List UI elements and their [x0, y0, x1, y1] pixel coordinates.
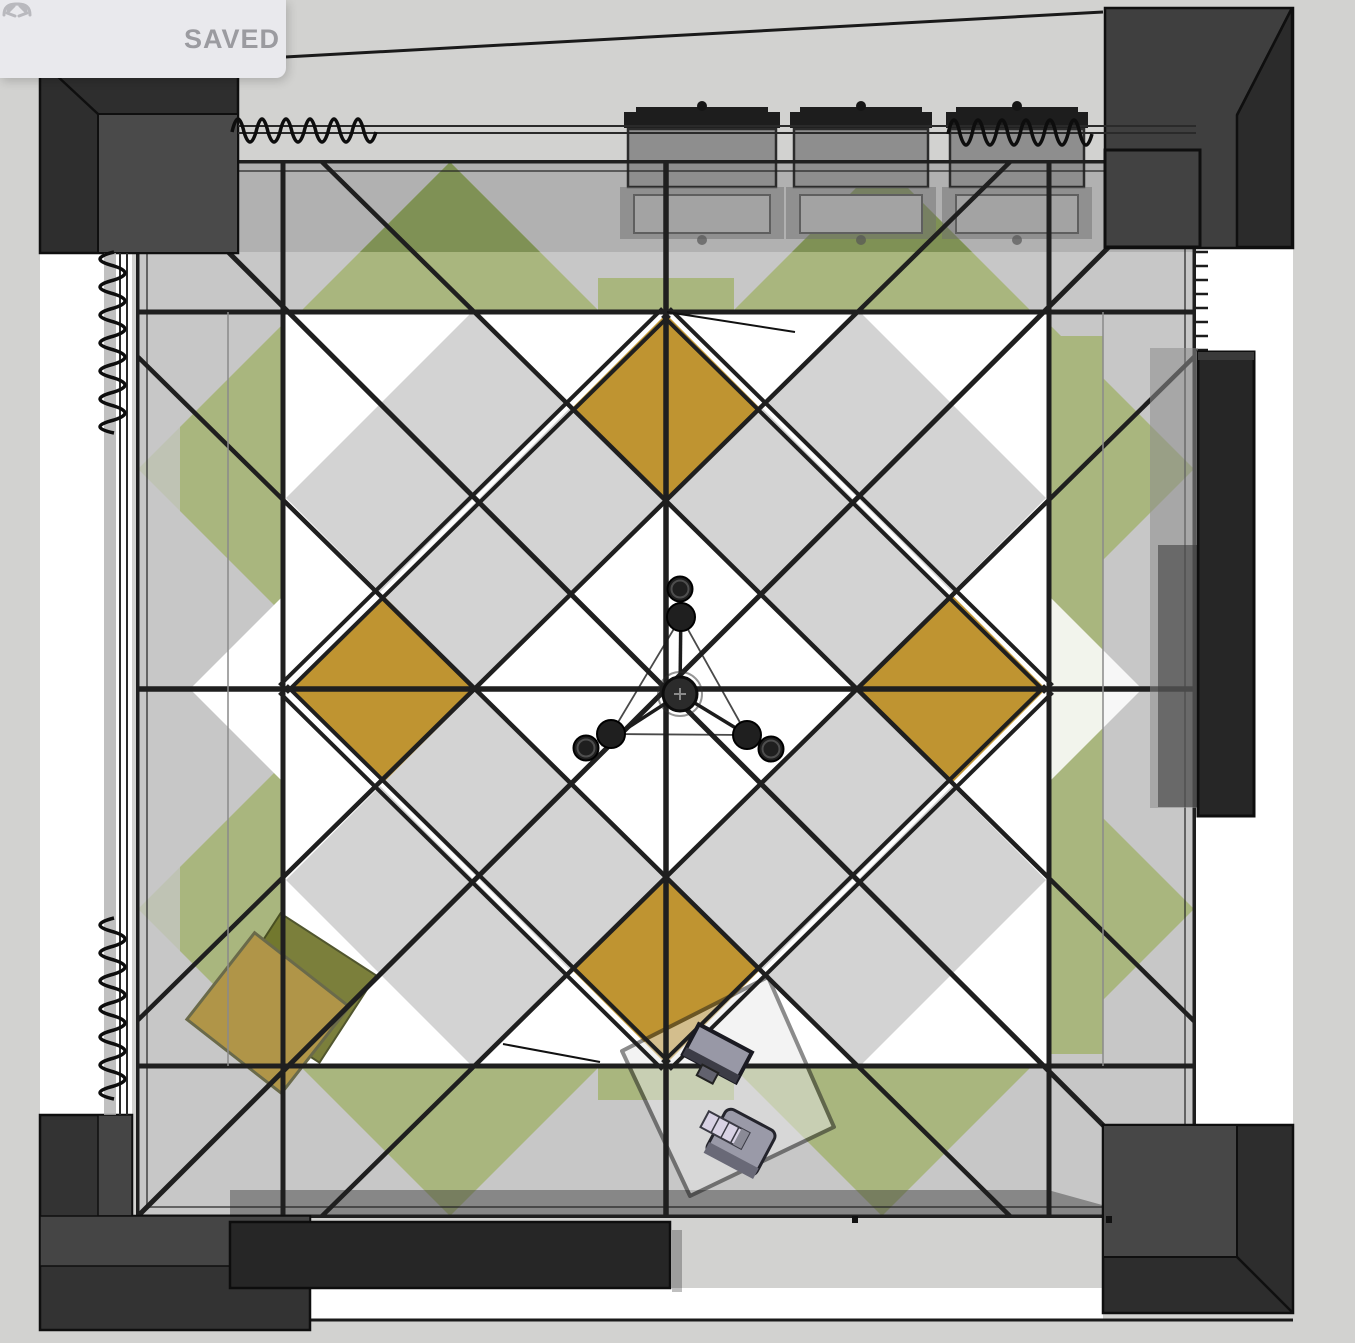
- toolbar: SAVED: [0, 0, 286, 78]
- wardrobe-right[interactable]: [1150, 348, 1254, 816]
- wall-corner-bottom-right: [1103, 1125, 1293, 1313]
- window-strip-bottom: [228, 1288, 1103, 1320]
- wall-cabinet-1[interactable]: [620, 101, 784, 245]
- app-window: SAVED: [0, 0, 1355, 1343]
- save-status-badge: SAVED: [184, 24, 280, 55]
- redo-icon: [0, 0, 34, 30]
- wall-corner-top-right: [1105, 8, 1293, 248]
- wall-cabinet-2[interactable]: [786, 101, 936, 245]
- window-strip-left: [40, 253, 132, 1115]
- wall-corner-top-left: [40, 60, 238, 253]
- floor-plan-canvas[interactable]: [0, 0, 1355, 1343]
- wall-cabinets[interactable]: [620, 101, 1092, 245]
- wall-cabinet-3[interactable]: [942, 101, 1092, 245]
- cabinet-knob-icon: [856, 101, 866, 111]
- undo-button[interactable]: [36, 24, 72, 54]
- redo-button[interactable]: [110, 24, 146, 54]
- cabinet-knob-icon: [697, 101, 707, 111]
- cabinet-knob-icon: [1012, 101, 1022, 111]
